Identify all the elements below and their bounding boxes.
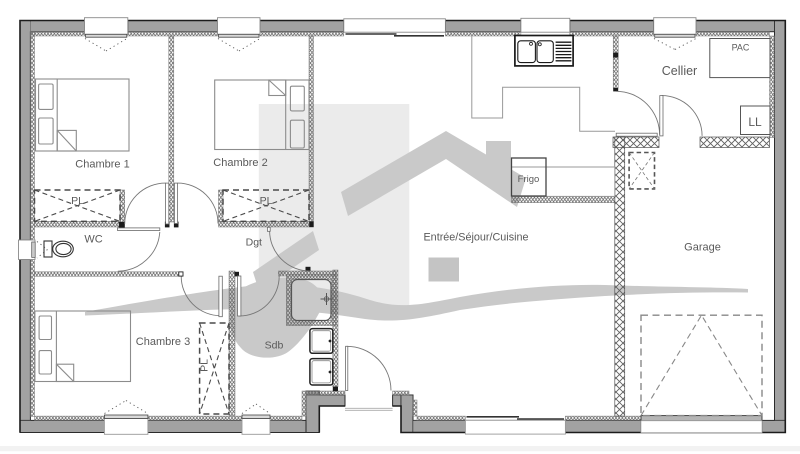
svg-text:PL: PL — [71, 195, 84, 207]
svg-text:Frigo: Frigo — [518, 174, 540, 185]
svg-text:PAC: PAC — [732, 43, 750, 53]
svg-text:PL: PL — [199, 359, 211, 372]
svg-text:LL: LL — [748, 115, 762, 129]
svg-text:Chambre 2: Chambre 2 — [213, 157, 267, 169]
svg-text:Sdb: Sdb — [265, 340, 284, 352]
svg-text:Chambre 1: Chambre 1 — [75, 159, 129, 171]
svg-text:Entrée/Séjour/Cuisine: Entrée/Séjour/Cuisine — [423, 232, 528, 244]
svg-text:Cellier: Cellier — [662, 64, 697, 78]
svg-text:Chambre 3: Chambre 3 — [136, 336, 190, 348]
svg-text:Garage: Garage — [684, 242, 721, 254]
svg-text:WC: WC — [84, 234, 102, 246]
svg-text:Dgt: Dgt — [246, 237, 262, 249]
svg-text:PL: PL — [260, 195, 273, 207]
